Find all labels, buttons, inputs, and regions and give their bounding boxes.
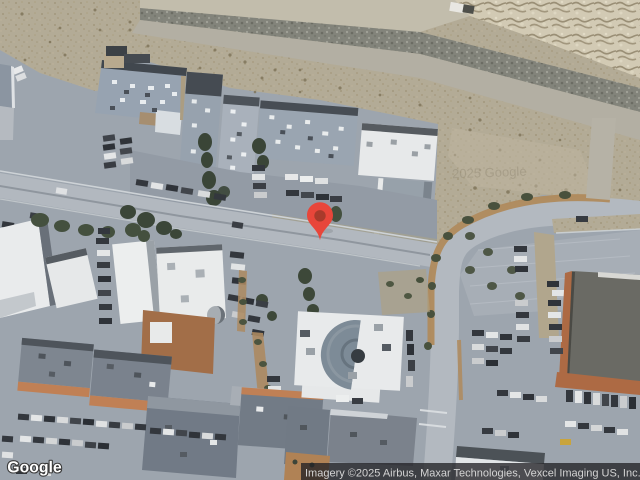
svg-text:2025 Google: 2025 Google: [452, 164, 527, 182]
svg-text:Imagery ©2025 Airbus, Maxar Te: Imagery ©2025 Airbus, Maxar Technologies…: [305, 468, 640, 480]
